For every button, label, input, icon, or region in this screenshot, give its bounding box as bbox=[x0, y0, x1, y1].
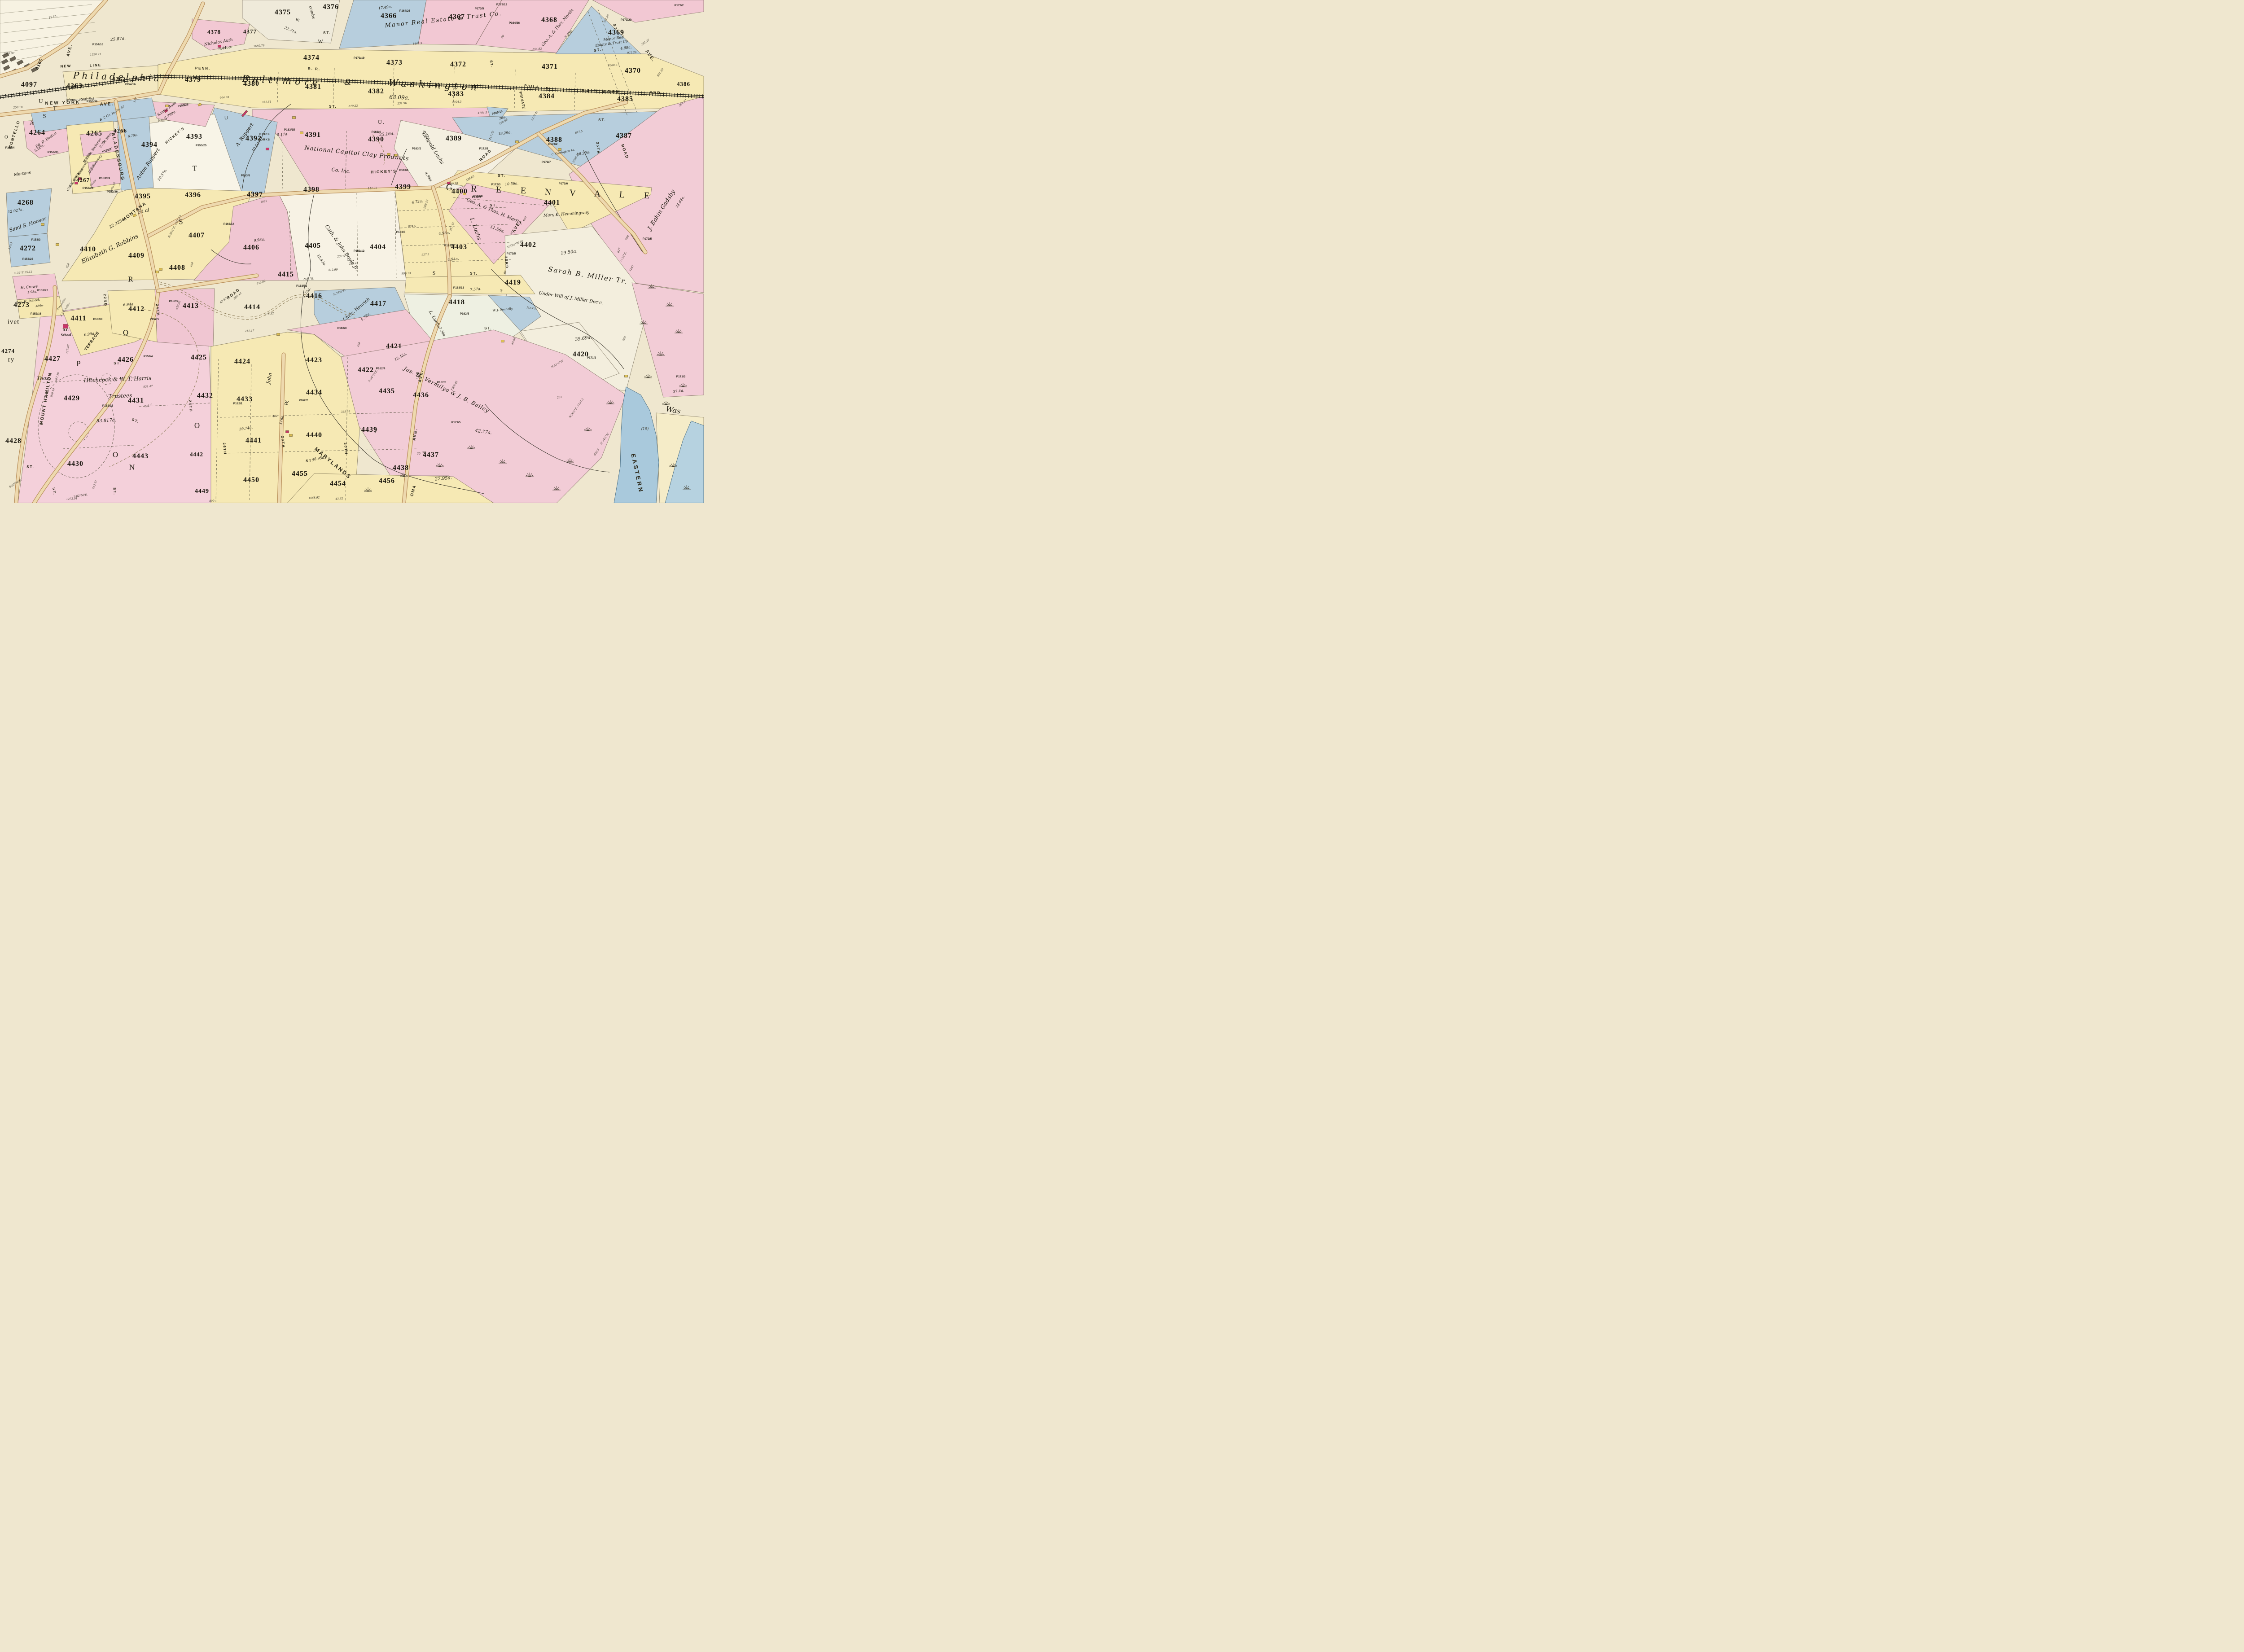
parcel-number-label: 4373 bbox=[386, 59, 403, 66]
street-label: NEW bbox=[60, 64, 71, 68]
street-label: R. R. bbox=[308, 67, 320, 71]
survey-number-label: 412.99 bbox=[328, 268, 337, 272]
building-label: D.C. bbox=[62, 329, 70, 332]
map-canvas[interactable]: 4375437643664367436843694374437343724371… bbox=[0, 0, 704, 503]
building-marker-yellow bbox=[501, 340, 504, 342]
street-label: 26TH bbox=[222, 443, 227, 455]
region-top-right-pink bbox=[592, 0, 704, 22]
building-marker-yellow bbox=[300, 132, 303, 134]
survey-number-label: 820.38 bbox=[448, 182, 458, 185]
plat-ref-label: P152/16 bbox=[31, 313, 41, 316]
parcel-number-label: 4400 bbox=[451, 188, 468, 195]
parcel-number-label: 4442 bbox=[190, 451, 203, 457]
tract-letter-label: O bbox=[113, 451, 119, 459]
building-marker-red bbox=[286, 431, 289, 433]
survey-number-label: 579.22 bbox=[348, 105, 358, 108]
tract-letter-label: T bbox=[193, 165, 198, 172]
plat-ref-label: P163/5 bbox=[396, 231, 406, 234]
parcel-number-label: 4398 bbox=[303, 186, 320, 193]
survey-number-label: 4704.5 bbox=[452, 101, 461, 104]
building-marker-yellow bbox=[56, 244, 59, 246]
parcel-number-label: 4424 bbox=[234, 358, 250, 365]
parcel-number-label: 4456 bbox=[379, 478, 395, 485]
parcel-number-label: 4450 bbox=[243, 477, 259, 484]
tract-letter-label: O bbox=[194, 422, 201, 429]
street-label: 30TH bbox=[343, 443, 348, 455]
street-label: ST. bbox=[306, 460, 314, 463]
parcel-number-label: 4411 bbox=[70, 315, 86, 322]
plat-ref-label: P163/12 bbox=[354, 250, 364, 253]
region-block-4413-pink bbox=[155, 289, 215, 346]
marsh-grass-icon bbox=[662, 401, 670, 405]
parcel-number-label: 4399 bbox=[395, 184, 411, 191]
edge-fragment-label: ivet bbox=[8, 319, 20, 326]
survey-number-label: 874.5 bbox=[408, 225, 416, 228]
marsh-grass-icon bbox=[644, 374, 652, 378]
parcel-number-label: 4428 bbox=[5, 438, 22, 445]
plat-ref-label: P172/2 bbox=[675, 4, 684, 8]
survey-number-label: 43.62 bbox=[335, 498, 343, 501]
plat-ref-label: P162/3 bbox=[337, 327, 347, 330]
plat-ref-label: P172/5 bbox=[643, 238, 652, 241]
tract-letter-label: A bbox=[594, 189, 602, 198]
plat-ref-label: P162/1 bbox=[233, 403, 243, 406]
parcel-number-label: 4429 bbox=[64, 395, 80, 402]
survey-number-label: 258.18 bbox=[13, 106, 22, 109]
parcel-number-label: 4430 bbox=[67, 460, 83, 468]
plat-ref-label: P171/2 bbox=[587, 357, 596, 360]
plat-ref-label: P173/19 bbox=[354, 57, 364, 60]
plat-ref-label: P171/5 bbox=[451, 421, 461, 425]
plat-ref-label: P152/15 bbox=[102, 405, 113, 408]
plat-ref-label: P163/15 bbox=[284, 129, 295, 132]
plat-ref-label: P172/6 bbox=[559, 183, 568, 186]
building-marker-red bbox=[266, 148, 269, 150]
parcel-number-label: 4420 bbox=[573, 351, 589, 358]
parcel-number-label: 4097 bbox=[21, 81, 37, 88]
tract-letter-label: E bbox=[520, 186, 527, 196]
parcel-number-label: 4412 bbox=[128, 306, 145, 313]
survey-number-label: 800 bbox=[209, 500, 215, 503]
plat-ref-label: P163/1 bbox=[399, 169, 409, 172]
parcel-number-label: 4449 bbox=[195, 488, 209, 495]
street-label: ST. bbox=[470, 272, 478, 276]
building-marker-yellow bbox=[558, 149, 561, 151]
street-label: 24TH bbox=[155, 304, 160, 316]
street-label: 35TH bbox=[596, 142, 600, 154]
parcel-number-label: 4263 bbox=[66, 83, 83, 90]
street-label: BRICK bbox=[259, 133, 270, 136]
parcel-number-label: 4441 bbox=[245, 437, 262, 444]
building-marker-yellow bbox=[159, 268, 162, 271]
parcel-number-label: 4406 bbox=[243, 244, 259, 251]
parcel-number-label: 4410 bbox=[80, 246, 96, 253]
parcel-number-label: 4416 bbox=[306, 293, 322, 300]
parcel-number-label: 4385 bbox=[617, 96, 633, 103]
parcel-number-label: 4435 bbox=[379, 388, 395, 395]
survey-number-label: 90 bbox=[422, 451, 426, 454]
plat-ref-label: P164/26 bbox=[509, 22, 520, 25]
plat-ref-label: P153/3 bbox=[31, 239, 41, 242]
parcel-number-label: 4436 bbox=[413, 392, 429, 399]
plat-ref-label: P153/22 bbox=[37, 289, 48, 293]
building-marker-yellow bbox=[293, 117, 296, 119]
plat-ref-label: P153/4 bbox=[5, 147, 15, 150]
parcel-number-label: 4384 bbox=[539, 93, 555, 100]
survey-number-label: 223.45 bbox=[349, 262, 358, 265]
parcel-number-label: 4391 bbox=[305, 131, 321, 139]
parcel-number-label: 4454 bbox=[330, 480, 346, 487]
street-label: ST. bbox=[498, 174, 506, 178]
tract-letter-label: L bbox=[619, 190, 626, 200]
street-label: ST. bbox=[329, 105, 337, 109]
street-label: 24TH bbox=[188, 400, 193, 412]
parcel-number-label: 4370 bbox=[625, 67, 641, 74]
parcel-number-label: 4368 bbox=[541, 17, 557, 24]
plat-ref-label: P163/6 bbox=[241, 175, 250, 178]
parcel-number-label: 4393 bbox=[186, 133, 202, 140]
parcel-number-label: 4268 bbox=[18, 199, 34, 206]
plat-ref-label: P172/5 bbox=[507, 253, 516, 256]
parcel-number-label: 4401 bbox=[544, 199, 560, 206]
survey-number-label: N.81°E. bbox=[303, 277, 314, 280]
street-label: AVE. bbox=[100, 102, 114, 107]
parcel-number-label: 4427 bbox=[44, 355, 61, 363]
building-marker-yellow bbox=[41, 223, 44, 226]
street-label: PENN. bbox=[195, 66, 211, 70]
parcel-number-label: 4387 bbox=[616, 132, 632, 140]
plat-ref-label: P154/16 bbox=[125, 83, 136, 87]
tract-letter-label: E bbox=[495, 185, 503, 195]
parcel-number-label: 4386 bbox=[677, 81, 690, 87]
survey-number-label: 4704.5 bbox=[478, 111, 487, 114]
parcel-number-label: 4409 bbox=[128, 252, 145, 259]
building-marker-yellow bbox=[156, 271, 159, 273]
plat-ref-label: P152/1 bbox=[150, 318, 159, 321]
street-label: LINE bbox=[90, 63, 102, 67]
street-label: 22ND bbox=[103, 294, 107, 307]
parcel-number-label: 4415 bbox=[278, 271, 294, 278]
tract-letter-label: O bbox=[4, 135, 9, 140]
building-marker-yellow bbox=[625, 375, 628, 377]
plat-ref-label: P162/2 bbox=[299, 399, 308, 403]
plat-ref-label: P153/25 bbox=[196, 145, 206, 148]
parcel-number-label: 4266 bbox=[114, 128, 127, 134]
parcel-number-label: 4382 bbox=[368, 88, 384, 95]
parcel-number-label: 4414 bbox=[244, 304, 260, 311]
plat-ref-label: P163/4 bbox=[372, 131, 381, 134]
survey-number-label: 731.64 bbox=[262, 101, 271, 104]
parcel-number-label: 4397 bbox=[247, 191, 263, 198]
plat-ref-label: P163/11 bbox=[296, 285, 307, 288]
owner-label: Trustees bbox=[108, 393, 132, 399]
plat-ref-label: P163/10 bbox=[444, 245, 455, 248]
owner-label: Philadelphia bbox=[73, 71, 162, 83]
parcel-number-label: 4418 bbox=[449, 299, 465, 306]
building-marker-yellow bbox=[516, 141, 519, 143]
parcel-number-label: 4379 bbox=[185, 76, 201, 83]
parcel-number-label: 4432 bbox=[197, 392, 213, 399]
plat-ref-label: P163/13 bbox=[453, 287, 464, 290]
street-label: 28TH bbox=[280, 436, 285, 448]
region-block-4405-white bbox=[278, 190, 406, 280]
parcel-number-label: 4371 bbox=[542, 63, 558, 70]
parcel-number-label: 4405 bbox=[305, 242, 321, 250]
street-label: ST. bbox=[484, 327, 492, 330]
plat-ref-label: P162/5 bbox=[460, 313, 469, 316]
plat-ref-label: P172/1 bbox=[479, 148, 489, 151]
note-label: (19) bbox=[641, 427, 649, 431]
street-label: ST. bbox=[52, 487, 56, 495]
tract-letter-label: T bbox=[53, 105, 57, 111]
plat-ref-label: P153/23 bbox=[22, 258, 33, 261]
parcel-number-label: 4377 bbox=[243, 29, 257, 35]
survey-number-label: 482 bbox=[272, 415, 278, 418]
parcel-number-label: 4264 bbox=[29, 129, 45, 136]
parcel-number-label: 4438 bbox=[393, 464, 409, 472]
parcel-number-label: 4417 bbox=[370, 300, 386, 307]
plat-ref-label: P164/26 bbox=[399, 10, 410, 13]
plat-ref-label: P173/20 bbox=[621, 19, 631, 22]
street-label: ST. bbox=[613, 24, 618, 32]
parcel-number-label: 4413 bbox=[183, 302, 199, 310]
parcel-number-label: 4422 bbox=[358, 367, 374, 374]
street-label: AND bbox=[649, 91, 661, 95]
owner-label: 63.09a. bbox=[389, 94, 410, 101]
parcel-number-label: 4394 bbox=[141, 141, 158, 149]
parcel-number-label: 4395 bbox=[135, 193, 151, 200]
plat-ref-label: P163/2 bbox=[412, 148, 421, 151]
street-label: WORKS bbox=[258, 139, 270, 141]
parcel-number-label: 4366 bbox=[381, 13, 397, 20]
tract-letter-label: V bbox=[569, 188, 577, 197]
tract-letter-label: S bbox=[43, 113, 47, 119]
parcel-number-label: 4389 bbox=[446, 135, 462, 142]
survey-number-label: 664.38 bbox=[219, 96, 229, 99]
tract-letter-label: E bbox=[644, 191, 651, 201]
parcel-number-label: 4407 bbox=[188, 232, 205, 239]
plat-ref-label: P162/6 bbox=[437, 381, 447, 385]
tract-letter-label: U bbox=[224, 115, 229, 120]
street-label: ST. bbox=[26, 465, 35, 469]
plat-ref-label: P172/7 bbox=[542, 161, 551, 164]
survey-number-label: 325.99 bbox=[341, 410, 350, 413]
survey-number-label: 927.3 bbox=[421, 254, 429, 257]
parcel-number-label: 4440 bbox=[306, 432, 322, 439]
parcel-number-label: 4425 bbox=[191, 354, 207, 361]
parcel-number-label: 4265 bbox=[86, 130, 102, 137]
edge-fragment-label: ry bbox=[8, 357, 15, 364]
tract-letter-label: S bbox=[433, 270, 437, 276]
building-marker-yellow bbox=[289, 434, 293, 437]
parcel-number-label: 4272 bbox=[20, 245, 36, 252]
street-label: ST. bbox=[114, 362, 122, 365]
parcel-number-label: 4421 bbox=[386, 343, 402, 350]
tract-letter-label: R bbox=[128, 276, 134, 283]
parcel-number-label: 4375 bbox=[275, 9, 291, 16]
parcel-number-label: 4274 bbox=[1, 348, 15, 354]
parcel-number-label: 4378 bbox=[207, 29, 221, 35]
survey-number-label: 30 bbox=[417, 453, 421, 456]
owner-label: & bbox=[344, 79, 352, 87]
parcel-number-label: 4404 bbox=[370, 244, 386, 251]
plat-ref-label: P153/26 bbox=[83, 187, 93, 190]
street-label: ST. bbox=[598, 118, 606, 122]
plat-ref-label: P152/4 bbox=[144, 355, 153, 359]
tract-letter-label: N bbox=[544, 187, 552, 197]
plat-ref-label: P173/5 bbox=[475, 8, 484, 11]
parcel-number-label: 4423 bbox=[306, 357, 322, 364]
plat-ref-label: P171/3 bbox=[676, 376, 686, 379]
survey-number-label: 111.72 bbox=[368, 187, 377, 190]
parcel-number-label: 4455 bbox=[292, 470, 308, 478]
building-marker-yellow bbox=[277, 333, 280, 336]
parcel-number-label: 4443 bbox=[132, 453, 149, 460]
parcel-number-label: 4396 bbox=[185, 192, 201, 199]
tract-letter-label: W bbox=[318, 39, 324, 44]
plat-ref-label: P153/39 bbox=[99, 177, 110, 180]
plat-ref-label: P153/35 bbox=[48, 151, 58, 154]
tract-letter-label: N bbox=[129, 464, 136, 471]
survey-number-label: 1463.5 bbox=[412, 42, 422, 45]
tract-letter-label: P bbox=[76, 360, 81, 368]
plat-ref-label: P172/3 bbox=[491, 184, 501, 187]
survey-number-label: 237.5 bbox=[337, 255, 345, 259]
parcel-number-label: 4376 bbox=[323, 4, 339, 11]
survey-number-label: 231.96 bbox=[397, 102, 407, 105]
parcel-number-label: 4419 bbox=[505, 279, 521, 286]
plat-ref-label: P153/36 bbox=[87, 101, 97, 104]
street-label: ST. bbox=[489, 60, 494, 69]
plat-ref-label: P163/14 bbox=[224, 223, 234, 226]
street-label: ST. bbox=[490, 204, 498, 207]
plat-ref-label: P173/2 bbox=[548, 143, 558, 146]
survey-number-label: 554.82 bbox=[532, 48, 542, 51]
survey-number-label: 996.13 bbox=[401, 272, 411, 275]
tract-letter-label: Q bbox=[123, 329, 129, 337]
tract-letter-label: U bbox=[39, 98, 44, 104]
street-label: 33RD bbox=[504, 256, 508, 269]
plat-ref-label: P152/2 bbox=[169, 300, 179, 303]
plat-ref-label: P173/12 bbox=[496, 4, 507, 7]
tract-letter-label: R bbox=[471, 184, 478, 193]
building-label: School bbox=[61, 333, 71, 337]
parcel-number-label: 4374 bbox=[303, 54, 320, 61]
region-river-north-pink bbox=[632, 283, 704, 397]
parcel-number-label: 4408 bbox=[169, 264, 185, 272]
parcel-number-label: 4372 bbox=[450, 61, 466, 68]
survey-number-label: 211.47 bbox=[245, 329, 254, 333]
street-label: R. bbox=[546, 87, 552, 91]
tract-letter-label: U. bbox=[378, 119, 385, 125]
plat-ref-label: P172/4 bbox=[472, 196, 482, 199]
street-label: ST. bbox=[112, 487, 117, 495]
parcel-number-label: 4434 bbox=[306, 389, 322, 396]
tract-letter-label: A bbox=[30, 120, 35, 126]
plat-ref-label: P152/3 bbox=[93, 318, 103, 321]
plat-ref-label: P154/16 bbox=[92, 44, 103, 47]
street-label: ST. bbox=[323, 31, 331, 35]
